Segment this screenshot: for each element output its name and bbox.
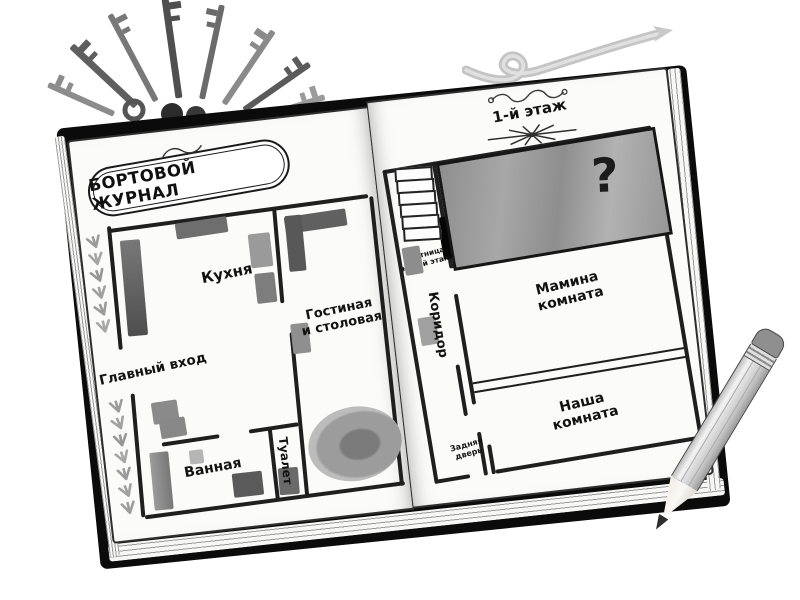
entrance-arrow-icon — [109, 415, 129, 433]
entrance-arrow-icon — [116, 466, 135, 483]
entrance-arrow-icon — [113, 449, 132, 467]
wall-segment — [434, 474, 470, 484]
entrance-arrow-icon — [91, 285, 110, 302]
room-label-our-room: Наша комната — [512, 379, 656, 443]
entrance-arrow-icon — [89, 267, 109, 285]
rooms-divider-wall — [473, 347, 688, 393]
kitchen-side-furniture — [254, 272, 277, 304]
wall-segment — [495, 435, 703, 474]
illustration-scene: БОРТОВОЙ ЖУРНАЛ — [0, 0, 800, 600]
mystery-room: ? — [436, 127, 673, 271]
logbook: БОРТОВОЙ ЖУРНАЛ — [66, 67, 713, 551]
back-door-label: Задняя дверь — [438, 433, 497, 466]
entrance-arrow-icon — [85, 234, 104, 251]
entrance-arrow-icon — [112, 433, 130, 449]
entrance-arrow-icon — [87, 251, 105, 267]
room-label-living: Гостиная и столовая — [289, 293, 393, 342]
entrance-arrow-icon — [120, 500, 139, 516]
entrance-arrow-icon — [92, 301, 112, 319]
question-mark: ? — [590, 148, 620, 204]
stairs-icon — [394, 168, 441, 242]
kitchen-counter-furniture — [120, 239, 148, 336]
pencil-tip — [651, 514, 668, 533]
bathroom-furniture — [232, 471, 265, 498]
entrance-arrow-icon — [117, 482, 137, 500]
room-label-main-entrance: Главный вход — [98, 351, 208, 390]
bathtub-furniture — [149, 451, 173, 511]
page-right: 1-й этаж — [366, 67, 713, 509]
room-label-moms-room: Мамина комната — [497, 259, 641, 323]
right-floorplan: ? Лестница на 2-й этаж — [375, 115, 720, 504]
sink-furniture — [159, 416, 188, 439]
banner-curl-icon — [160, 142, 205, 159]
entrance-arrow-icon — [108, 398, 127, 415]
page-left: БОРТОВОЙ ЖУРНАЛ — [67, 106, 414, 544]
entrance-arrow-icon — [95, 319, 114, 335]
